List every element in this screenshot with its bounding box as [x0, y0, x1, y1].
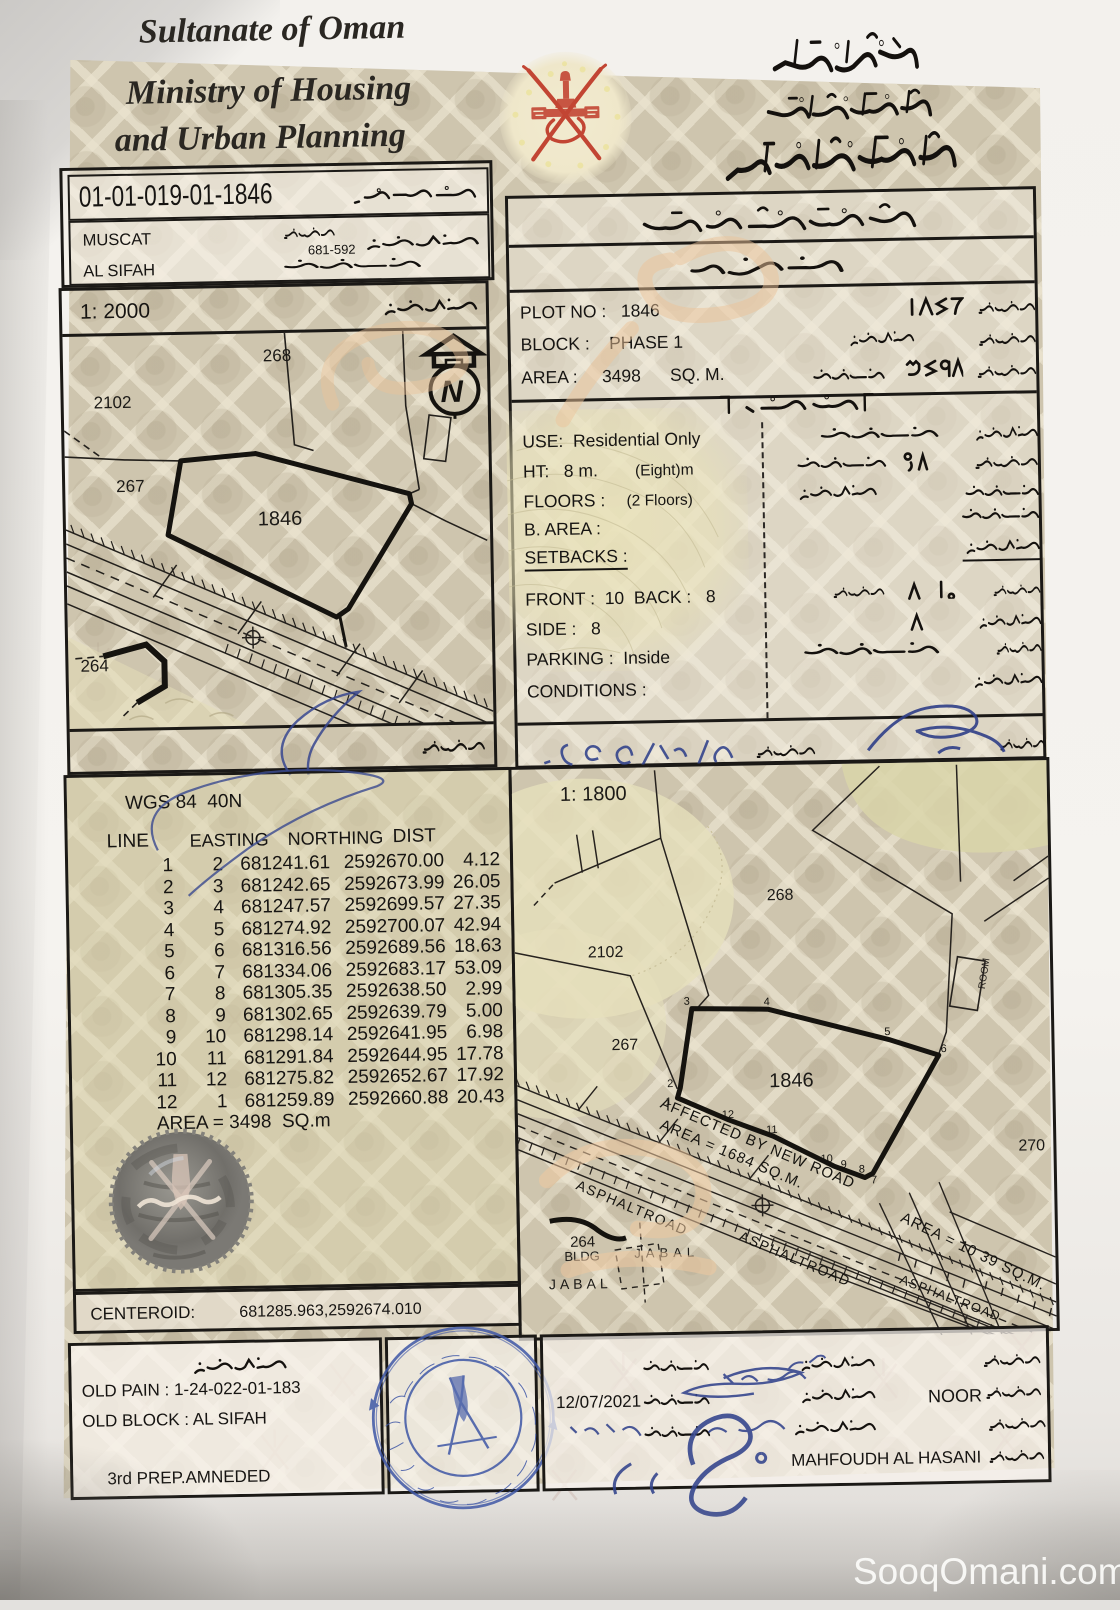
svg-text:267: 267 [611, 1037, 638, 1054]
svg-text:2102: 2102 [93, 393, 131, 413]
svg-text:267: 267 [116, 477, 145, 497]
svg-text:5: 5 [884, 1026, 890, 1038]
svg-text:270: 270 [1018, 1137, 1045, 1154]
svg-text:1846: 1846 [769, 1069, 814, 1092]
svg-text:268: 268 [767, 887, 794, 904]
svg-text:264: 264 [80, 656, 109, 676]
svg-text:7: 7 [871, 1174, 877, 1186]
svg-text:11: 11 [766, 1124, 778, 1136]
svg-text:1846: 1846 [258, 508, 303, 531]
svg-text:3: 3 [684, 996, 690, 1008]
svg-text:2102: 2102 [588, 944, 624, 962]
svg-text:6: 6 [941, 1043, 947, 1055]
svg-text:8: 8 [859, 1163, 865, 1175]
svg-text:2: 2 [667, 1078, 673, 1090]
svg-text:1: 1800: 1: 1800 [560, 783, 627, 806]
svg-text:ROOM: ROOM [977, 957, 993, 989]
svg-text:4: 4 [764, 996, 770, 1008]
